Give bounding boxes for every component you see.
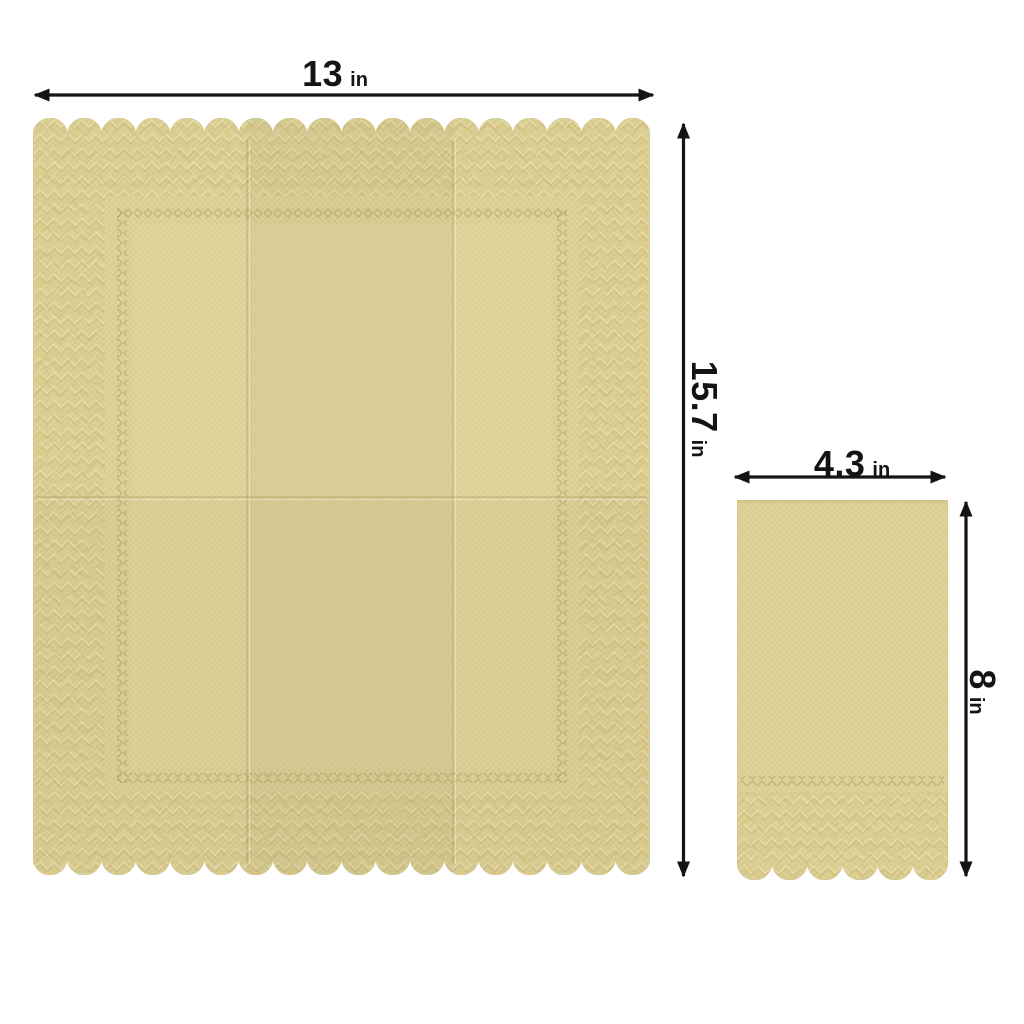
product-dimension-diagram: { "page": { "background": "#ffffff", "de… — [0, 0, 1024, 1024]
small-width-unit: in — [872, 459, 890, 481]
small-height-label: 8in — [964, 669, 1000, 714]
large-height-value: 15.7 — [684, 361, 725, 433]
large-height-unit: in — [687, 440, 709, 458]
lower-panel-shading — [33, 497, 650, 875]
small-width-value: 4.3 — [814, 443, 866, 484]
large-height-label: 15.7in — [686, 361, 722, 458]
diamond-chain-line — [741, 776, 944, 786]
large-width-label: 13in — [302, 56, 368, 92]
small-width-label: 4.3in — [814, 446, 890, 482]
unfolded-napkin-illustration — [33, 118, 650, 875]
small-height-value: 8 — [962, 669, 1003, 690]
small-height-unit: in — [965, 697, 987, 715]
folded-napkin-illustration — [737, 500, 948, 880]
large-width-value: 13 — [302, 53, 343, 94]
folded-napkin-body — [737, 500, 948, 880]
large-width-unit: in — [350, 69, 368, 91]
unfolded-napkin-body — [33, 118, 650, 875]
